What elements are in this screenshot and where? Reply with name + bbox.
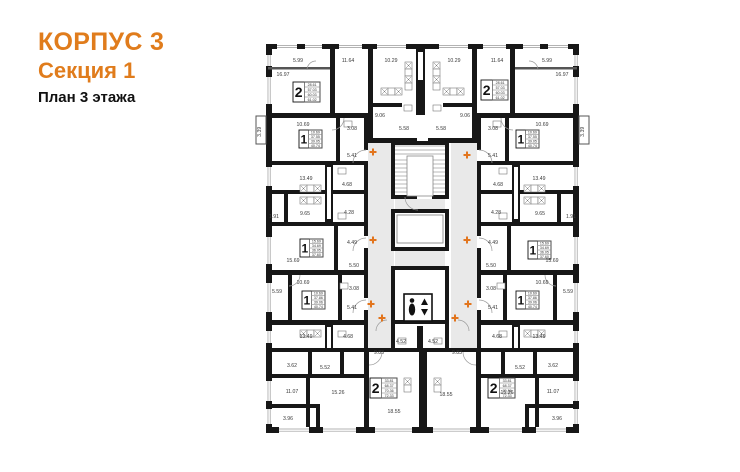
kitchen-appliance-icon — [405, 83, 412, 90]
wall — [266, 404, 320, 408]
apartment-area-value: 68.37 — [503, 384, 512, 388]
window — [266, 409, 272, 424]
wall — [364, 248, 368, 298]
wall — [266, 374, 368, 378]
shaft-slot — [514, 167, 518, 219]
elevator-icon — [410, 298, 415, 303]
room-area-label: 16.97 — [277, 72, 290, 78]
wall — [553, 275, 557, 320]
floor-plan-page: КОРПУС 3 Секция 1 План 3 этажа 228.6157.… — [0, 0, 740, 472]
kitchen-appliance-icon — [531, 185, 538, 192]
bath-fixture-icon — [433, 105, 441, 111]
kitchen-appliance-icon — [404, 385, 411, 392]
window — [439, 44, 468, 49]
room-area-label: 3.08 — [488, 126, 498, 132]
apartment-area-value: 68.37 — [385, 384, 394, 388]
apartment-area-value: 37.55 — [311, 135, 320, 139]
corridor-floor — [395, 251, 445, 266]
room-area-label: 5.59 — [272, 289, 282, 295]
apartment-rooms-count: 2 — [372, 380, 380, 396]
window — [536, 427, 566, 433]
room-area-label: 3.39 — [257, 127, 263, 137]
window — [339, 44, 362, 49]
kitchen-appliance-icon — [433, 83, 440, 90]
wall — [477, 248, 481, 298]
wall — [266, 113, 372, 118]
apartment-area-value: 15.69 — [312, 240, 321, 244]
apartment-area-value: 34.69 — [540, 246, 549, 250]
apartment-area-value: 57.03 — [308, 88, 317, 92]
window — [548, 44, 568, 49]
shaft-slot — [327, 327, 331, 348]
room-area-label: 10.69 — [297, 122, 310, 128]
room-area-label: 15.69 — [287, 258, 300, 264]
room-area-label: 3.39 — [580, 127, 586, 137]
apartment-rooms-count: 2 — [295, 84, 303, 100]
window — [375, 427, 412, 433]
kitchen-appliance-icon — [388, 88, 395, 95]
stair-landing — [407, 156, 433, 196]
apartment-rooms-count: 1 — [301, 241, 308, 255]
room-area-label: 11.64 — [491, 58, 504, 64]
apartment-area-value: 37.55 — [528, 135, 537, 139]
room-area-label: 13.49 — [300, 176, 313, 182]
room-area-label: 5.99 — [293, 58, 303, 64]
room-area-label: 13.49 — [533, 334, 546, 340]
wall — [477, 310, 481, 352]
shaft-slot — [327, 167, 331, 219]
room-area-label: 5.41 — [347, 305, 357, 311]
room-area-label: 10.69 — [536, 280, 549, 286]
window — [266, 237, 272, 264]
wall — [391, 141, 395, 199]
room-area-label: 13.49 — [533, 176, 546, 182]
window — [573, 237, 579, 264]
apartment-area-value: 70.36 — [385, 389, 394, 393]
room-area-label: 5.41 — [488, 305, 498, 311]
apartment-area-value: 10.69 — [314, 292, 323, 296]
elevator-icon — [404, 294, 432, 321]
room-area-label: 3.96 — [552, 416, 562, 422]
wall — [308, 352, 312, 376]
apartment-area-value: 10.69 — [528, 131, 537, 135]
entrance-marker — [466, 152, 468, 159]
room-area-label: 9.83 — [374, 350, 384, 356]
room-area-label: 4.28 — [491, 210, 501, 216]
apartment-area-value: 39.06 — [528, 301, 537, 305]
kitchen-appliance-icon — [450, 88, 457, 95]
room-area-label: 9.65 — [300, 211, 310, 217]
room-area-label: 5.41 — [347, 153, 357, 159]
wall — [419, 352, 427, 433]
apartment-area-value: 36.05 — [540, 251, 549, 255]
room-area-label: 10.29 — [448, 58, 461, 64]
wall — [445, 209, 449, 251]
entrance-marker — [372, 237, 374, 244]
wall — [507, 226, 511, 272]
apartment-area-value: 36.05 — [312, 249, 321, 253]
room-area-label: 16.97 — [556, 72, 569, 78]
wall — [477, 162, 481, 236]
apartment-area-value: 39.05 — [528, 140, 537, 144]
apartment-rooms-count: 1 — [303, 293, 310, 307]
room-area-label: 4.68 — [342, 182, 352, 188]
kitchen-appliance-icon — [307, 185, 314, 192]
thin-partition — [268, 67, 330, 70]
window — [433, 427, 470, 433]
room-area-label: 10.69 — [536, 122, 549, 128]
wall — [445, 266, 449, 324]
room-area-label: 10.29 — [385, 58, 398, 64]
apartment-rooms-count: 1 — [529, 243, 536, 257]
room-area-label: 4.49 — [347, 240, 357, 246]
room-area-label: 3.62 — [548, 363, 558, 369]
room-area-label: 5.41 — [488, 153, 498, 159]
wall — [330, 49, 335, 118]
elevator-icon — [409, 304, 415, 316]
apartment-area-value: 60.03 — [496, 91, 505, 95]
wall — [316, 404, 320, 427]
wall — [443, 103, 473, 107]
room-area-label: 13.49 — [300, 334, 313, 340]
bath-fixture-icon — [340, 283, 348, 289]
wall — [505, 118, 509, 164]
kitchen-appliance-icon — [307, 197, 314, 204]
room-area-label: 3.96 — [283, 416, 293, 422]
apartment-area-value: 60.03 — [308, 93, 317, 97]
room-area-label: 4.28 — [344, 210, 354, 216]
entrance-marker — [381, 315, 383, 322]
wall — [557, 194, 561, 222]
wall — [525, 404, 529, 427]
apartment-area-value: 34.69 — [312, 244, 321, 248]
room-area-label: 4.52 — [428, 339, 438, 345]
apartment-area-value: 33.81 — [385, 379, 394, 383]
wall — [510, 49, 515, 118]
bath-fixture-icon — [497, 283, 505, 289]
room-area-label: 11.64 — [342, 58, 355, 64]
wall — [364, 118, 368, 150]
wall — [477, 320, 579, 325]
window — [266, 381, 272, 401]
window — [573, 381, 579, 401]
shaft-slot — [514, 327, 518, 348]
wall — [364, 310, 368, 352]
wall — [391, 324, 395, 350]
room-area-label: 5.58 — [399, 126, 409, 132]
room-area-label: 11.07 — [286, 389, 299, 395]
apartment-area-value: 10.69 — [528, 292, 537, 296]
room-area-label: 1.91 — [566, 214, 576, 220]
window — [266, 167, 272, 186]
wall — [477, 374, 579, 378]
room-area-label: 4.68 — [343, 334, 353, 340]
apartment-area-value: 61.02 — [308, 98, 317, 102]
window — [573, 409, 579, 424]
room-area-label: 4.49 — [488, 240, 498, 246]
window — [279, 427, 309, 433]
apartment-area-value: 28.61 — [308, 83, 317, 87]
window — [323, 427, 356, 433]
window — [523, 44, 540, 49]
room-area-label: 9.65 — [535, 211, 545, 217]
window — [266, 283, 272, 312]
door-arc — [463, 352, 476, 365]
apartment-area-value: 37.86 — [528, 296, 537, 300]
room-area-label: 4.68 — [492, 334, 502, 340]
wall — [368, 49, 373, 143]
apartment-area-value: 33.81 — [503, 379, 512, 383]
room-area-label: 11.07 — [547, 389, 560, 395]
wall — [306, 378, 310, 427]
bath-fixture-icon — [404, 105, 412, 111]
entrance-marker — [466, 237, 468, 244]
room-area-label: 5.50 — [486, 263, 496, 269]
wall — [445, 324, 449, 350]
apartment-area-value: 28.61 — [496, 81, 505, 85]
room-area-label: 18.55 — [388, 409, 401, 415]
apartment-area-value: 61.02 — [496, 96, 505, 100]
wall — [288, 275, 292, 320]
corridor-floor — [395, 199, 445, 209]
apartment-area-value: 40.74 — [314, 305, 323, 309]
wall — [334, 226, 338, 272]
wall — [372, 103, 402, 107]
bath-fixture-icon — [499, 168, 507, 174]
wall — [525, 404, 579, 408]
room-area-label: 3.62 — [287, 363, 297, 369]
apartment-rooms-count: 1 — [517, 293, 524, 307]
wall — [417, 326, 423, 350]
room-area-label: 5.99 — [542, 58, 552, 64]
wall — [338, 275, 342, 320]
apartment-area-value: 72.33 — [385, 394, 394, 398]
wall — [391, 209, 449, 213]
window — [573, 167, 579, 186]
room-area-label: 9.06 — [460, 113, 470, 119]
wall — [266, 320, 368, 325]
room-area-label: 3.08 — [486, 286, 496, 292]
window — [483, 44, 506, 49]
elevator-cab — [397, 215, 443, 243]
wall — [364, 352, 369, 427]
wall — [340, 352, 344, 376]
wall — [445, 141, 449, 199]
wall — [266, 222, 368, 226]
wall — [364, 162, 368, 236]
wall — [477, 118, 481, 150]
wall — [391, 247, 449, 251]
entrance-marker — [454, 315, 456, 322]
apartment-area-value: 40.74 — [311, 144, 320, 148]
window — [377, 44, 406, 49]
window — [266, 77, 272, 104]
window — [573, 283, 579, 312]
room-area-label: 15.26 — [332, 390, 345, 396]
kitchen-appliance-icon — [405, 69, 412, 76]
room-area-label: 10.69 — [297, 280, 310, 286]
apartment-area-value: 57.03 — [496, 86, 505, 90]
room-area-label: 15.26 — [501, 390, 514, 396]
room-area-label: 4.68 — [493, 182, 503, 188]
wall — [266, 270, 368, 275]
wall — [336, 118, 340, 164]
room-area-label: 5.52 — [515, 365, 525, 371]
room-area-label: 5.59 — [563, 289, 573, 295]
room-area-label: 5.50 — [349, 263, 359, 269]
apartment-rooms-count: 2 — [490, 380, 498, 396]
room-area-label: 3.08 — [349, 286, 359, 292]
wall — [501, 352, 505, 376]
entrance-marker — [372, 149, 374, 156]
wall — [503, 275, 507, 320]
shaft-slot — [418, 52, 423, 80]
apartment-rooms-count: 2 — [483, 82, 491, 98]
apartment-area-value: 10.69 — [311, 131, 320, 135]
window — [266, 55, 272, 66]
bath-fixture-icon — [338, 168, 346, 174]
window — [573, 77, 579, 104]
wall — [391, 266, 395, 324]
apartment-rooms-count: 1 — [300, 132, 307, 146]
apartment-area-value: 37.60 — [312, 253, 321, 257]
window — [277, 44, 297, 49]
apartment-area-value: 39.05 — [311, 140, 320, 144]
apartment-area-value: 37.86 — [314, 296, 323, 300]
floor-plan-drawing: 228.6157.0360.0361.02228.6157.0360.0361.… — [0, 0, 740, 472]
apartment-area-value: 39.06 — [314, 301, 323, 305]
entrance-marker — [467, 301, 469, 308]
room-area-label: 5.58 — [436, 126, 446, 132]
room-area-label: 18.55 — [440, 392, 453, 398]
window — [573, 55, 579, 66]
room-area-label: 3.08 — [347, 126, 357, 132]
entrance-marker — [370, 301, 372, 308]
window — [489, 427, 522, 433]
thin-partition — [515, 67, 577, 70]
room-area-label: 9.83 — [452, 350, 462, 356]
wall — [533, 352, 537, 376]
kitchen-appliance-icon — [433, 69, 440, 76]
room-area-label: 4.52 — [396, 339, 406, 345]
room-area-label: 9.06 — [375, 113, 385, 119]
apartment-rooms-count: 1 — [517, 132, 524, 146]
room-area-label: 1.91 — [269, 214, 279, 220]
apartment-area-value: 40.74 — [528, 144, 537, 148]
room-area-label: 15.69 — [546, 258, 559, 264]
window — [266, 331, 272, 343]
wall — [472, 49, 477, 143]
wall — [284, 194, 288, 222]
window — [573, 331, 579, 343]
wall — [477, 222, 579, 226]
apartment-area-value: 40.74 — [528, 305, 537, 309]
apartment-area-value: 15.69 — [540, 242, 549, 246]
wall — [473, 113, 579, 118]
window — [305, 44, 322, 49]
wall — [391, 141, 449, 145]
wall — [476, 352, 481, 427]
wall — [391, 209, 395, 251]
room-area-label: 5.52 — [320, 365, 330, 371]
kitchen-appliance-icon — [531, 197, 538, 204]
wall — [391, 266, 449, 270]
wall — [535, 378, 539, 427]
wall — [477, 270, 579, 275]
